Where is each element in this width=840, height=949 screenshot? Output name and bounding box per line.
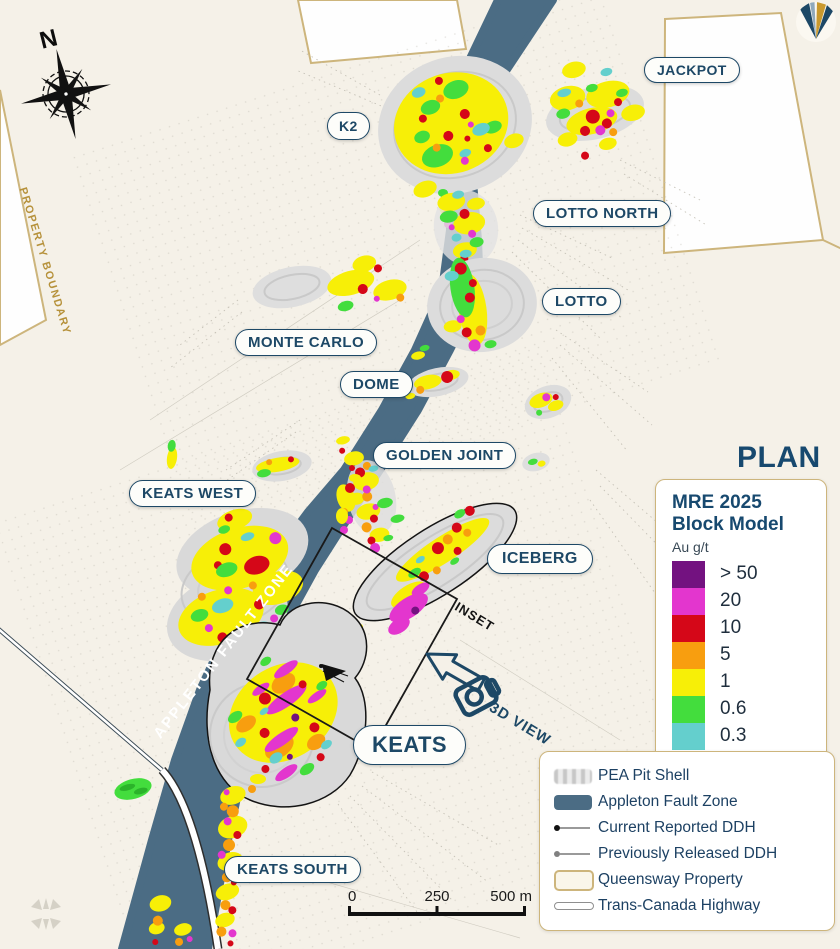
current-ddh-swatch-icon <box>554 825 590 831</box>
legend-item-label: Trans-Canada Highway <box>598 897 760 915</box>
legend-value: 20 <box>705 590 741 612</box>
scale-tick-500: 500 m <box>490 888 532 905</box>
scale-bar-line <box>348 909 526 919</box>
legend-item: Trans-Canada Highway <box>554 893 822 919</box>
color-swatch-10 <box>672 615 705 642</box>
legend-entry: > 50 <box>672 561 812 588</box>
legend-item: Current Reported DDH <box>554 815 822 841</box>
legend-value: > 50 <box>705 563 758 585</box>
zone-label-jackpot: JACKPOT <box>644 57 740 83</box>
legend-value: 1 <box>705 671 731 693</box>
color-swatch-03 <box>672 723 705 750</box>
previous-ddh-swatch-icon <box>554 851 590 857</box>
legend-value: 0.6 <box>705 698 746 720</box>
legend-entry: 10 <box>672 615 812 642</box>
legend-item: PEA Pit Shell <box>554 763 822 789</box>
legend-item-label: Current Reported DDH <box>598 819 756 837</box>
legend-item: Appleton Fault Zone <box>554 789 822 815</box>
zone-label-k2: K2 <box>327 112 370 140</box>
legend-item: Previously Released DDH <box>554 841 822 867</box>
zone-label-monte-carlo: MONTE CARLO <box>235 329 377 356</box>
legend-item-label: Queensway Property <box>598 871 743 889</box>
fault-zone-swatch-icon <box>554 795 592 810</box>
color-swatch-gt50 <box>672 561 705 588</box>
queensway-property-swatch-icon <box>554 870 594 891</box>
block-model-legend-title-line1: MRE 2025 <box>672 492 812 514</box>
scale-bar: 0 250 500 m <box>348 888 526 922</box>
legend-entry: 20 <box>672 588 812 615</box>
zone-label-lotto-north: LOTTO NORTH <box>533 200 671 227</box>
color-swatch-06 <box>672 696 705 723</box>
zone-label-golden-joint: GOLDEN JOINT <box>373 442 516 469</box>
block-model-legend-unit: Au g/t <box>672 539 812 555</box>
company-logo-icon <box>796 2 836 42</box>
color-swatch-20 <box>672 588 705 615</box>
legend-entry: 0.6 <box>672 696 812 723</box>
zone-label-keats: KEATS <box>353 725 466 765</box>
block-model-legend: MRE 2025 Block Model Au g/t > 50 20 10 5… <box>655 479 827 765</box>
legend-value: 0.3 <box>705 725 746 747</box>
scale-tick-250: 250 <box>424 888 449 905</box>
legend-item-label: Appleton Fault Zone <box>598 793 738 811</box>
legend-entry: 0.3 <box>672 723 812 750</box>
pit-shell-swatch-icon <box>554 769 592 784</box>
color-swatch-1 <box>672 669 705 696</box>
scale-tick-0: 0 <box>348 888 356 905</box>
plan-title: PLAN <box>737 441 821 475</box>
zone-label-keats-south: KEATS SOUTH <box>224 856 361 883</box>
zone-label-keats-west: KEATS WEST <box>129 480 256 507</box>
queensway-plan-map: N PROPERTY BOUNDARY APPLETON FAULT ZONE … <box>0 0 840 949</box>
legend-item-label: Previously Released DDH <box>598 845 777 863</box>
block-model-legend-title-line2: Block Model <box>672 514 812 536</box>
zone-label-iceberg: ICEBERG <box>487 544 593 574</box>
map-feature-legend: PEA Pit Shell Appleton Fault Zone Curren… <box>539 751 835 931</box>
legend-value: 5 <box>705 644 731 666</box>
legend-item: Queensway Property <box>554 867 822 893</box>
legend-item-label: PEA Pit Shell <box>598 767 689 785</box>
legend-value: 10 <box>705 617 741 639</box>
zone-label-lotto: LOTTO <box>542 288 621 315</box>
legend-entry: 5 <box>672 642 812 669</box>
legend-entry: 1 <box>672 669 812 696</box>
color-swatch-5 <box>672 642 705 669</box>
highway-swatch-icon <box>554 902 594 910</box>
zone-label-dome: DOME <box>340 371 413 398</box>
